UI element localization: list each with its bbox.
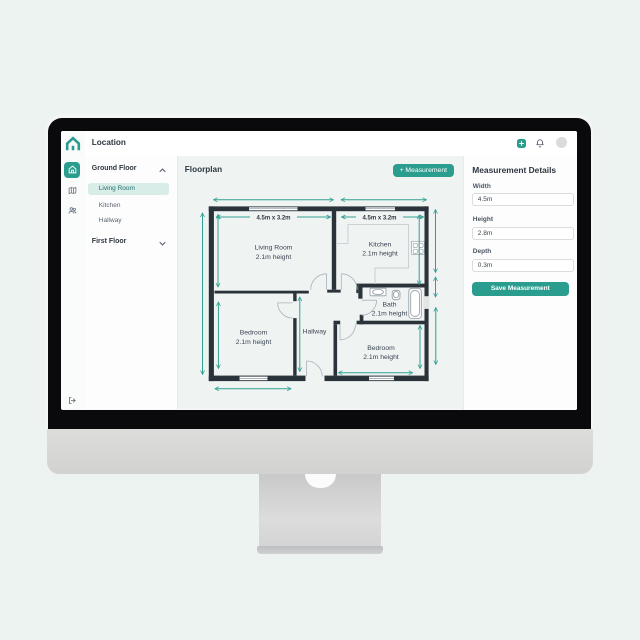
svg-text:2.1m height: 2.1m height	[256, 254, 292, 261]
svg-text:Kitchen: Kitchen	[369, 241, 392, 248]
svg-text:4.5m x 3.2m: 4.5m x 3.2m	[362, 215, 396, 221]
svg-text:Bedroom: Bedroom	[240, 330, 268, 337]
svg-text:2.1m height: 2.1m height	[363, 354, 399, 361]
svg-text:4.5m x 3.2m: 4.5m x 3.2m	[256, 215, 290, 221]
svg-text:Bath: Bath	[382, 301, 396, 308]
svg-text:2.1m height: 2.1m height	[236, 339, 272, 346]
svg-text:2.1m height: 2.1m height	[362, 251, 398, 258]
svg-text:Bedroom: Bedroom	[367, 345, 395, 352]
svg-text:2.1m height: 2.1m height	[372, 311, 408, 318]
svg-text:Living Room: Living Room	[255, 244, 293, 251]
svg-text:Hallway: Hallway	[303, 329, 327, 336]
